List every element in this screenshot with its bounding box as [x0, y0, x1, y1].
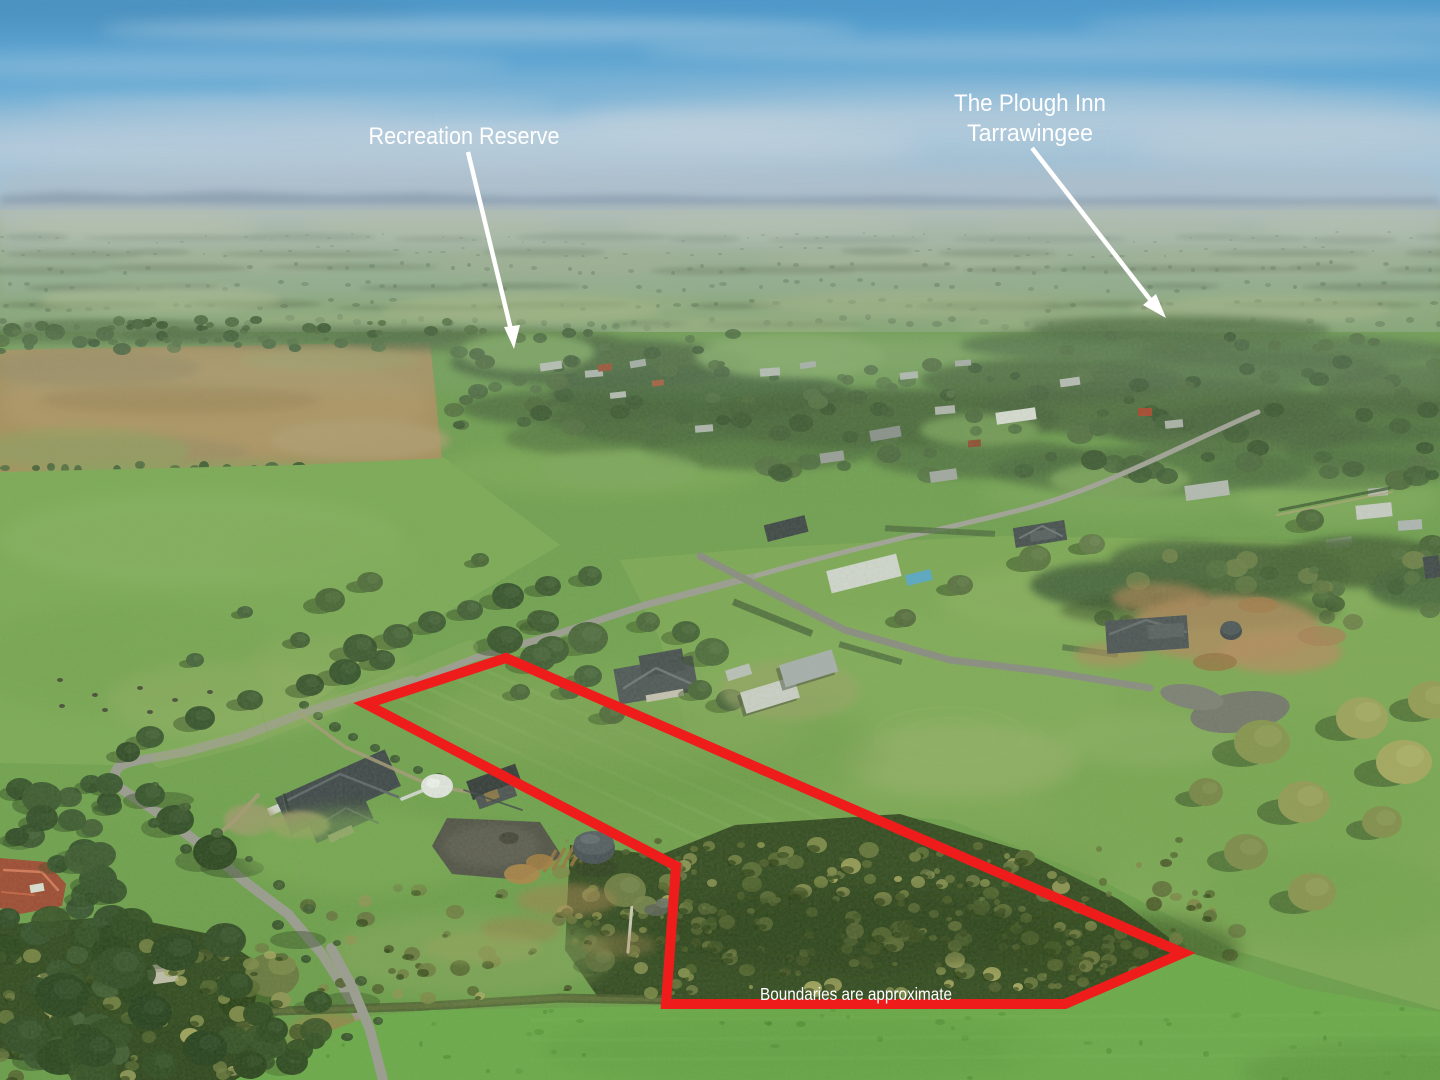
- svg-text:Boundaries are approximate: Boundaries are approximate: [760, 984, 952, 1004]
- svg-text:The Plough Inn: The Plough Inn: [954, 90, 1106, 117]
- svg-text:Tarrawingee: Tarrawingee: [967, 120, 1093, 147]
- svg-text:Recreation Reserve: Recreation Reserve: [369, 123, 560, 150]
